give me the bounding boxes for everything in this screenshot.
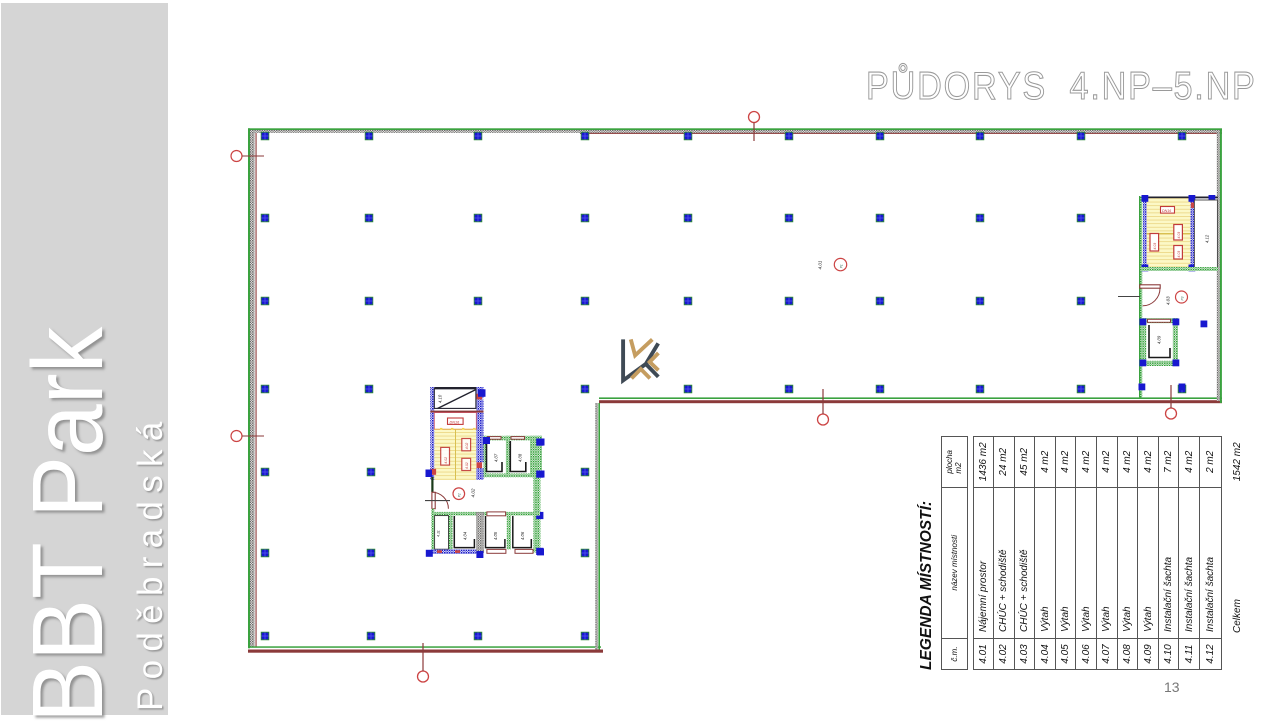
svg-text:4.05: 4.05 xyxy=(493,531,498,540)
svg-text:4.07: 4.07 xyxy=(494,453,499,462)
svg-text:4.03: 4.03 xyxy=(1166,296,1171,305)
svg-text:4.06: 4.06 xyxy=(520,531,525,540)
svg-text:4.02: 4.02 xyxy=(465,462,469,469)
svg-text:P1: P1 xyxy=(839,264,843,268)
svg-text:P2: P2 xyxy=(458,493,462,497)
svg-text:DN16: DN16 xyxy=(1162,209,1171,213)
svg-text:4.03: 4.03 xyxy=(1177,232,1181,239)
svg-text:4.02: 4.02 xyxy=(471,488,476,497)
svg-text:4.03: 4.03 xyxy=(1177,251,1181,258)
svg-text:4.09: 4.09 xyxy=(1157,335,1162,344)
svg-text:4.01: 4.01 xyxy=(818,260,823,269)
svg-text:4.04: 4.04 xyxy=(462,531,467,540)
svg-text:DN16: DN16 xyxy=(450,420,461,424)
svg-text:4.02: 4.02 xyxy=(465,443,469,450)
svg-text:P3: P3 xyxy=(1180,296,1184,300)
svg-text:4.10: 4.10 xyxy=(438,394,443,403)
svg-text:4.03: 4.03 xyxy=(1153,243,1157,250)
svg-text:4.11: 4.11 xyxy=(437,530,441,537)
svg-text:4.12: 4.12 xyxy=(1205,234,1210,243)
svg-text:4.02: 4.02 xyxy=(444,457,448,464)
svg-text:4.08: 4.08 xyxy=(518,453,523,462)
